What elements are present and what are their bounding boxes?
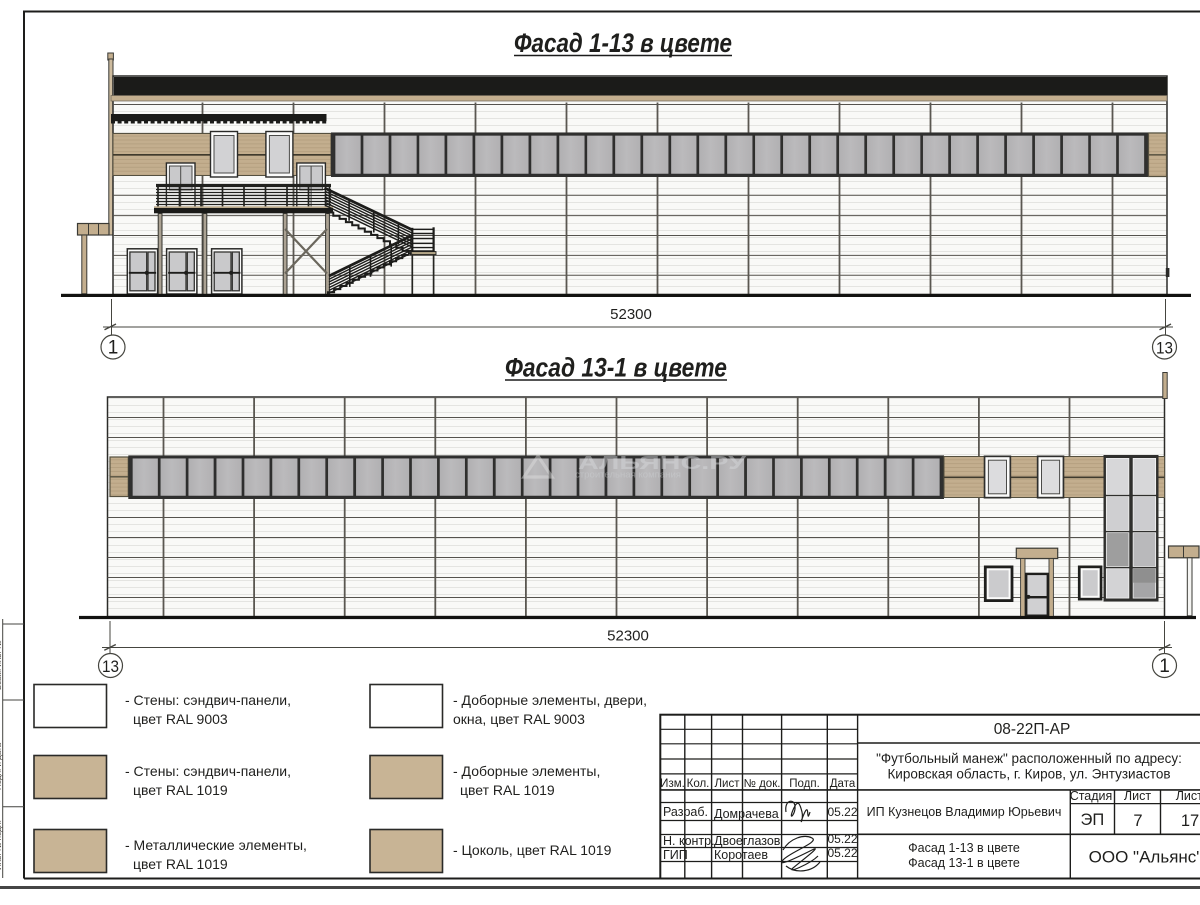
svg-text:окна, цвет RAL 9003: окна, цвет RAL 9003 [453,711,585,727]
svg-text:- Цоколь, цвет RAL 1019: - Цоколь, цвет RAL 1019 [453,842,612,858]
svg-text:13: 13 [102,657,119,676]
svg-text:1: 1 [1159,656,1170,677]
svg-text:Подп. и дата: Подп. и дата [0,742,3,790]
svg-text:Фасад 1-13 в цвете: Фасад 1-13 в цвете [908,841,1020,855]
svg-text:ИП Кузнецов Владимир Юрьевич: ИП Кузнецов Владимир Юрьевич [867,805,1062,819]
svg-text:Изм.: Изм. [660,778,685,790]
svg-text:ООО "Альянс": ООО "Альянс" [1089,848,1200,867]
svg-text:7: 7 [1133,812,1142,830]
svg-text:Двоеглазов: Двоеглазов [714,834,781,848]
svg-text:- Доборные элементы,: - Доборные элементы, [453,763,600,779]
svg-text:Взам. инв. №: Взам. инв. № [0,640,3,690]
svg-text:цвет RAL 1019: цвет RAL 1019 [133,856,228,872]
svg-text:Лист: Лист [715,778,741,790]
svg-text:Листов: Листов [1176,789,1200,803]
svg-text:ГИП: ГИП [663,848,688,862]
svg-text:- Стены: сэндвич-панели,: - Стены: сэндвич-панели, [125,692,291,708]
svg-text:строительная компания: строительная компания [575,470,681,481]
svg-text:Лист: Лист [1124,789,1151,803]
svg-text:цвет RAL 1019: цвет RAL 1019 [460,782,555,798]
svg-text:08-22П-АР: 08-22П-АР [994,721,1071,738]
svg-text:Фасад 1-13 в цвете: Фасад 1-13 в цвете [514,28,732,58]
svg-text:13: 13 [1156,339,1173,358]
svg-text:17: 17 [1181,812,1199,830]
svg-text:ЭП: ЭП [1081,811,1105,829]
svg-text:Инв. № подл.: Инв. № подл. [0,820,3,870]
svg-text:05.22: 05.22 [827,846,857,860]
svg-text:Домрачева: Домрачева [714,807,779,821]
svg-text:05.22: 05.22 [827,832,857,846]
svg-text:Фасад 13-1 в цвете: Фасад 13-1 в цвете [505,353,727,383]
svg-text:Фасад 13-1 в цвете: Фасад 13-1 в цвете [908,856,1020,870]
svg-text:цвет RAL 9003: цвет RAL 9003 [133,711,228,727]
svg-text:Стадия: Стадия [1070,789,1113,803]
svg-text:"Футбольный манеж" расположенн: "Футбольный манеж" расположенный по адре… [876,751,1182,766]
svg-text:- Стены: сэндвич-панели,: - Стены: сэндвич-панели, [125,763,291,779]
svg-text:цвет RAL 1019: цвет RAL 1019 [133,782,228,798]
svg-text:Кировская область, г. Киров, у: Кировская область, г. Киров, ул. Энтузиа… [887,767,1170,782]
svg-text:- Металлические элементы,: - Металлические элементы, [125,837,307,853]
svg-text:52300: 52300 [607,628,649,645]
svg-text:Коротаев: Коротаев [714,848,768,862]
svg-text:1: 1 [108,338,119,359]
svg-text:05.22: 05.22 [827,805,857,819]
svg-text:Подп.: Подп. [789,778,820,790]
svg-text:№ док.: № док. [744,778,781,790]
svg-text:Н. контр.: Н. контр. [663,834,715,848]
svg-text:Дата: Дата [830,778,856,790]
svg-text:Разраб.: Разраб. [663,805,708,819]
svg-text:Кол.: Кол. [687,778,710,790]
svg-text:- Доборные элементы, двери,: - Доборные элементы, двери, [453,692,647,708]
svg-text:52300: 52300 [610,306,652,323]
